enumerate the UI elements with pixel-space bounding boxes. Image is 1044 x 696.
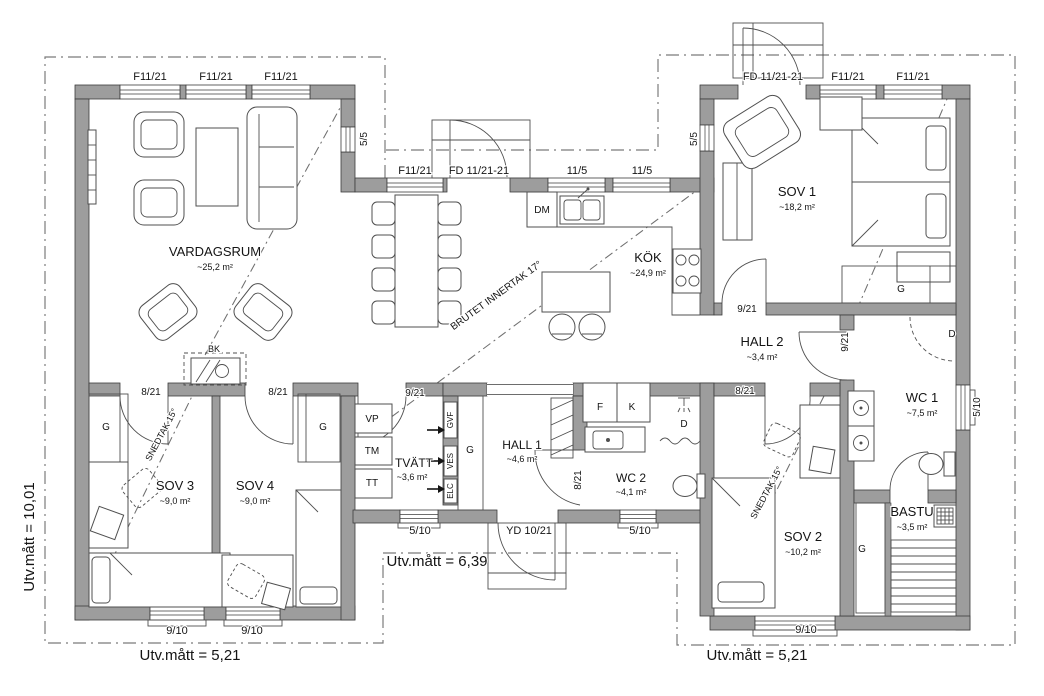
coffee-table	[196, 128, 238, 206]
appliance-label-tm: TM	[365, 446, 379, 457]
armchair	[230, 280, 295, 344]
appliance-label-f: F	[597, 402, 603, 413]
door-label-fd-mid: FD 11/21-21	[449, 165, 509, 177]
tech-label-elc: ELC	[446, 483, 455, 499]
room-label-kok: KÖK	[634, 250, 662, 265]
wc2-sink	[585, 427, 645, 452]
window-label-55-right: 5/5	[689, 132, 700, 146]
floor-plan-drawing: F11/21F11/21F11/215/5F11/21FD 11/21-2111…	[0, 0, 1044, 696]
door-label-fd-right: FD 11/21-21	[743, 71, 803, 83]
window-label-f1121-mid: F11/21	[398, 165, 431, 177]
attic-ladder	[551, 398, 573, 458]
measure-label-bottom-right: Utv.mått = 5,21	[706, 647, 807, 664]
window-label-510-a: 5/10	[409, 525, 430, 537]
area-label-vardagsrum: ~25,2 m²	[197, 262, 233, 272]
door-label-sov4: 8/21	[268, 387, 288, 398]
door-label-yd: YD 10/21	[506, 525, 552, 537]
door-sov4	[245, 396, 293, 444]
tech-label-ves: VES	[446, 453, 455, 469]
shower-head-icon	[678, 398, 690, 412]
appliance-label-k: K	[629, 402, 636, 413]
closet-label-g-sov2: G	[858, 544, 866, 555]
window-label-115-b: 11/5	[632, 165, 653, 177]
area-label-bastu: ~3,5 m²	[897, 522, 928, 532]
measure-label-left: Utv.mått = 10,01	[21, 482, 38, 591]
fireplace-label-bk: BK	[208, 344, 220, 354]
room-label-vardagsrum: VARDAGSRUM	[169, 244, 261, 259]
kitchen-island	[542, 272, 610, 340]
door-label-wc2: 8/21	[573, 470, 584, 490]
window-f1121-e	[884, 85, 942, 99]
shower-label-d-wc1: D	[948, 329, 955, 340]
kitchen-fixtures	[527, 188, 701, 341]
floor-plan-page: F11/21F11/21F11/215/5F11/21FD 11/21-2111…	[0, 0, 1044, 696]
fireplace-bk	[184, 353, 246, 385]
area-label-sov4: ~9,0 m²	[240, 496, 271, 506]
armchair	[134, 112, 184, 157]
room-label-hall1: HALL 1	[502, 438, 542, 452]
room-label-hall2: HALL 2	[741, 334, 784, 349]
window-55-right	[700, 125, 714, 151]
closet-label-g-sov1: G	[897, 284, 905, 295]
closet-label-g-hall1: G	[466, 445, 474, 456]
sofa	[247, 107, 297, 229]
kitchen-sink	[560, 188, 604, 225]
sov1-furniture	[720, 92, 956, 303]
window-910-a	[148, 606, 206, 626]
nightstand	[820, 97, 862, 130]
appliance-label-tt: TT	[366, 478, 378, 489]
area-label-tvatt: ~3,6 m²	[397, 472, 428, 482]
area-label-hall1: ~4,6 m²	[507, 454, 538, 464]
area-label-sov1: ~18,2 m²	[779, 202, 815, 212]
room-label-tvatt: TVÄTT	[395, 456, 434, 470]
window-label-115-a: 11/5	[567, 165, 588, 177]
window-label-910-a: 9/10	[166, 625, 187, 637]
window-label-f1121-e: F11/21	[896, 71, 929, 83]
armchair	[134, 180, 184, 225]
ceiling-label-snedtak-left: SNEDTAK 15°	[143, 406, 179, 462]
shower-label-d-wc2: D	[680, 419, 687, 430]
window-55-left	[341, 127, 355, 152]
window-label-55-left: 5/5	[359, 132, 370, 146]
window-f1121-c	[252, 85, 310, 99]
door-label-sov2: 8/21	[735, 386, 755, 397]
appliance-label-vp: VP	[365, 414, 379, 425]
window-label-510-b: 5/10	[629, 525, 650, 537]
wc1-toilet	[919, 452, 955, 476]
window-f1121-b	[186, 85, 246, 99]
dresser	[723, 163, 752, 240]
sov2-furniture	[712, 405, 840, 608]
window-label-f1121-d: F11/21	[831, 71, 864, 83]
sov2-closet	[856, 503, 885, 613]
area-label-sov3: ~9,0 m²	[160, 496, 191, 506]
window-115-a	[548, 178, 605, 192]
wc1-fixtures	[848, 317, 955, 476]
window-910-b	[224, 606, 282, 626]
room-label-sov1: SOV 1	[778, 184, 816, 199]
area-label-wc2: ~4,1 m²	[616, 487, 647, 497]
closet-label-g-sov4: G	[319, 422, 327, 433]
desk-chair	[762, 421, 802, 458]
wc2-toilet	[673, 474, 705, 498]
window-f1121-mid	[387, 178, 443, 192]
stool	[809, 446, 835, 473]
kitchen-hall1-opening	[487, 383, 573, 396]
measure-label-bottom-left: Utv.mått = 5,21	[139, 647, 240, 664]
fridge-freezer	[583, 383, 650, 422]
dining-table	[395, 195, 438, 327]
room-label-wc2: WC 2	[616, 471, 646, 485]
room-label-bastu: BASTU	[890, 504, 933, 519]
stove	[673, 249, 701, 293]
bench	[897, 252, 950, 282]
shower-drain-waves	[660, 438, 700, 444]
door-label-sov3: 8/21	[141, 387, 161, 398]
room-label-sov2: SOV 2	[784, 529, 822, 544]
closet-label-g-sov3: G	[102, 422, 110, 433]
bed	[89, 553, 230, 607]
window-f1121-a	[120, 85, 180, 99]
room-label-sov4: SOV 4	[236, 478, 274, 493]
armchair	[135, 280, 200, 344]
area-label-kok: ~24,9 m²	[630, 268, 666, 278]
area-label-wc1: ~7,5 m²	[907, 408, 938, 418]
sauna-heater	[934, 505, 956, 527]
window-115-b	[613, 178, 670, 192]
room-label-wc1: WC 1	[906, 390, 939, 405]
door-label-tvatt: 9/21	[405, 388, 425, 399]
arrow-gvf	[427, 426, 445, 434]
window-label-f1121-c: F11/21	[264, 71, 297, 83]
appliance-label-dm: DM	[534, 205, 550, 216]
area-label-sov2: ~10,2 m²	[785, 547, 821, 557]
door-sov1	[722, 259, 766, 303]
window-label-f1121-a: F11/21	[133, 71, 166, 83]
arrow-elc	[427, 485, 445, 493]
bed	[296, 490, 341, 607]
room-label-sov3: SOV 3	[156, 478, 194, 493]
wc1-double-sink	[848, 391, 874, 461]
tech-label-gvf: GVF	[446, 412, 455, 429]
armchair	[720, 92, 805, 173]
double-bed	[852, 118, 950, 246]
window-label-f1121-b: F11/21	[199, 71, 232, 83]
area-label-hall2: ~3,4 m²	[747, 352, 778, 362]
window-label-910-c: 9/10	[795, 624, 816, 636]
door-label-sov1: 9/21	[737, 304, 757, 315]
window-label-910-b: 9/10	[241, 625, 262, 637]
sauna-benches	[891, 540, 956, 612]
ceiling-label-brutet: BRUTET INNERTAK 17°	[449, 259, 545, 333]
window-label-510-wc1: 5/10	[972, 397, 983, 417]
door-label-wc1: 9/21	[840, 332, 851, 352]
radiator	[88, 130, 96, 204]
bastu-fixtures	[856, 503, 956, 613]
measure-label-mid: Utv.mått = 6,39	[386, 553, 487, 570]
dining-furniture	[372, 195, 461, 327]
